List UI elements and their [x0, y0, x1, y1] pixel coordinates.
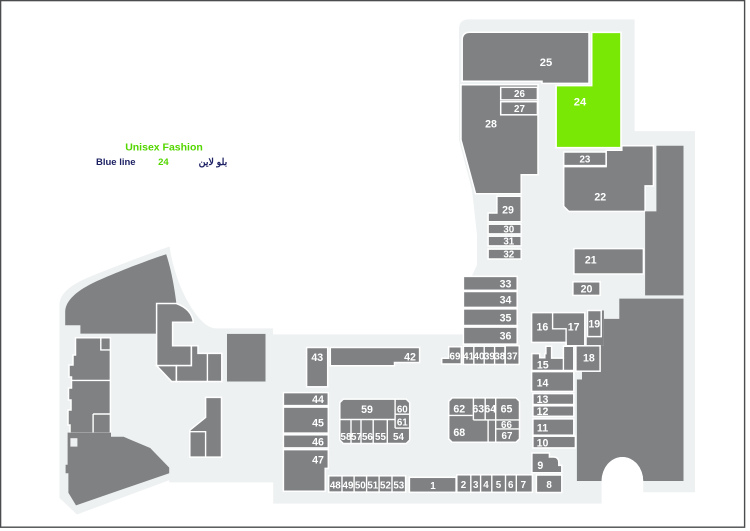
svg-text:55: 55	[375, 432, 386, 443]
svg-text:19: 19	[588, 319, 600, 331]
svg-text:48: 48	[330, 480, 341, 491]
svg-text:66: 66	[501, 420, 512, 431]
svg-text:46: 46	[312, 436, 324, 448]
svg-text:61: 61	[397, 418, 408, 429]
svg-text:Unisex Fashion: Unisex Fashion	[125, 142, 203, 154]
svg-text:5: 5	[496, 480, 502, 491]
svg-text:54: 54	[393, 432, 404, 443]
svg-text:30: 30	[503, 225, 514, 236]
svg-text:44: 44	[312, 394, 324, 406]
svg-text:65: 65	[501, 403, 513, 415]
svg-text:49: 49	[343, 480, 354, 491]
svg-text:8: 8	[546, 480, 552, 491]
svg-text:57: 57	[351, 432, 362, 443]
svg-text:24: 24	[574, 96, 587, 108]
svg-text:23: 23	[579, 154, 590, 165]
svg-text:9: 9	[537, 460, 543, 472]
svg-text:34: 34	[500, 295, 512, 307]
svg-text:10: 10	[537, 437, 549, 449]
svg-text:7: 7	[521, 480, 527, 491]
svg-text:16: 16	[537, 321, 549, 333]
svg-text:36: 36	[500, 331, 512, 343]
svg-text:42: 42	[404, 352, 416, 364]
svg-text:25: 25	[540, 57, 552, 69]
svg-text:32: 32	[503, 250, 514, 261]
svg-text:3: 3	[473, 480, 479, 491]
svg-text:50: 50	[355, 480, 366, 491]
svg-text:31: 31	[503, 237, 514, 248]
svg-text:17: 17	[568, 321, 580, 333]
svg-text:22: 22	[594, 191, 606, 203]
svg-text:33: 33	[500, 278, 512, 290]
svg-text:59: 59	[361, 404, 373, 416]
svg-text:14: 14	[537, 378, 549, 390]
svg-text:2: 2	[461, 480, 467, 491]
svg-text:11: 11	[537, 422, 548, 434]
svg-text:13: 13	[537, 394, 549, 406]
svg-text:Blue line: Blue line	[96, 157, 136, 168]
svg-text:28: 28	[485, 119, 497, 131]
svg-text:21: 21	[585, 255, 597, 267]
svg-text:43: 43	[311, 352, 323, 364]
svg-text:51: 51	[367, 480, 378, 491]
svg-text:1: 1	[430, 481, 436, 492]
svg-text:37: 37	[507, 351, 518, 362]
svg-text:45: 45	[312, 417, 324, 429]
svg-text:29: 29	[502, 204, 514, 216]
svg-text:53: 53	[393, 480, 404, 491]
svg-text:6: 6	[508, 480, 514, 491]
svg-text:67: 67	[502, 431, 513, 442]
svg-text:18: 18	[583, 353, 595, 365]
svg-text:68: 68	[453, 427, 465, 439]
svg-text:26: 26	[514, 89, 525, 100]
svg-text:60: 60	[397, 404, 408, 415]
svg-text:20: 20	[581, 284, 593, 296]
svg-text:69: 69	[450, 351, 461, 362]
svg-text:63: 63	[472, 403, 484, 415]
svg-text:4: 4	[483, 480, 489, 491]
svg-text:62: 62	[453, 403, 465, 415]
svg-text:52: 52	[380, 480, 391, 491]
svg-text:بلو لاين: بلو لاين	[199, 157, 228, 168]
svg-text:64: 64	[484, 403, 496, 415]
svg-text:15: 15	[537, 360, 549, 372]
svg-text:27: 27	[514, 104, 525, 115]
svg-text:47: 47	[312, 455, 324, 467]
svg-text:38: 38	[494, 351, 505, 362]
svg-text:35: 35	[500, 312, 512, 324]
svg-text:12: 12	[537, 406, 549, 418]
svg-text:24: 24	[158, 157, 169, 168]
svg-text:56: 56	[362, 432, 373, 443]
